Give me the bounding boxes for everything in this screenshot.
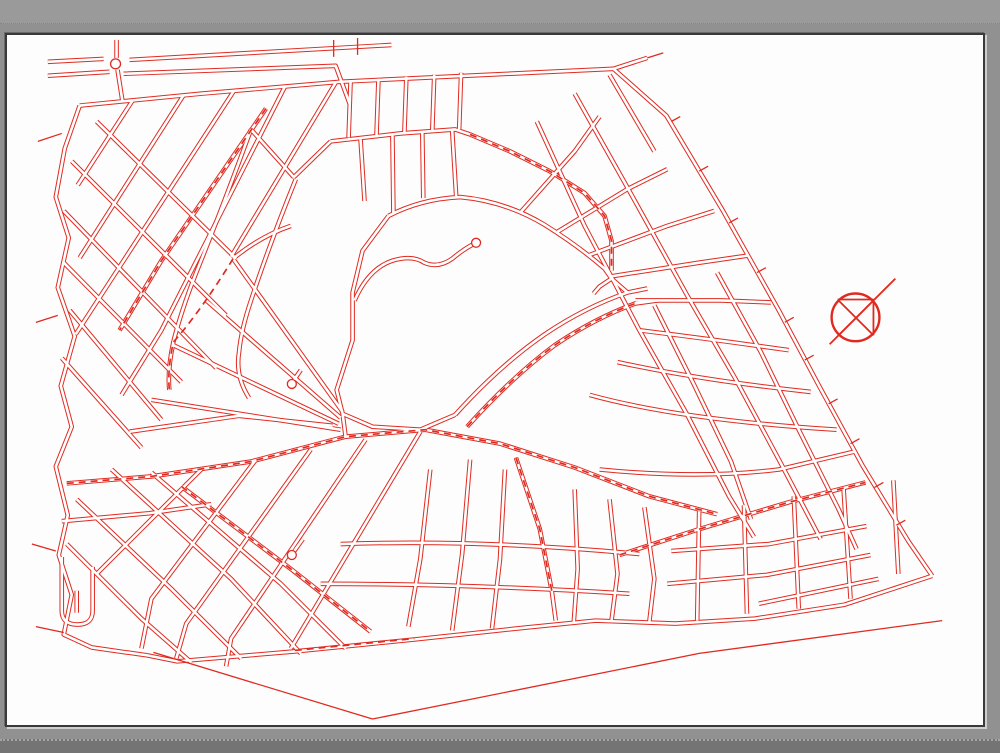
road-segment-casing: [337, 216, 389, 414]
road-segment-casing: [238, 179, 296, 398]
road-segment-core: [610, 256, 747, 277]
road-segment-core: [337, 216, 389, 414]
culdesac-bulb: [287, 380, 296, 389]
road-segment-core: [614, 58, 648, 69]
road-segment-core: [251, 129, 294, 177]
road-segment-core: [70, 310, 162, 419]
dashed-centerline: [467, 303, 635, 426]
road-segment-casing: [455, 289, 647, 415]
line-segment: [38, 133, 62, 141]
road-segment-core: [97, 469, 202, 573]
line-segment: [153, 652, 372, 719]
road-segment-core: [355, 244, 475, 301]
road-segment-core: [129, 45, 391, 60]
line-segment: [36, 315, 58, 322]
culdesac-bulb: [287, 551, 296, 560]
road-segment-core: [343, 414, 456, 430]
viewer-top-margin: [0, 0, 1000, 24]
road-casings: [48, 40, 932, 666]
road-segment-core: [97, 121, 236, 258]
app-window: { "viewer": { "description": "cad-map-pr…: [0, 0, 1000, 751]
line-segment: [32, 544, 56, 551]
road-segment-core: [392, 135, 393, 213]
road-segment-core: [639, 330, 788, 350]
road-segment-core: [455, 289, 647, 415]
drawing-sheet[interactable]: [5, 33, 985, 727]
road-segment-core: [594, 279, 612, 294]
road-segment-core: [291, 432, 420, 649]
road-segment-core: [78, 101, 133, 186]
road-segment-core: [62, 358, 142, 447]
road-segment-core: [238, 179, 296, 398]
line-segment: [647, 53, 663, 58]
map-drawing: [7, 35, 983, 725]
line-segment: [671, 117, 680, 122]
road-segment-core: [173, 345, 338, 424]
road-segment-core: [844, 488, 851, 598]
road-segment-casing: [516, 458, 556, 621]
line-segment: [851, 439, 860, 444]
dashed-centerline: [295, 639, 415, 651]
culdesac-bulb: [472, 238, 481, 247]
north-arrow-icon: [830, 279, 896, 345]
roundabout: [111, 59, 121, 69]
line-segment: [36, 627, 64, 633]
road-segment-core: [80, 96, 184, 258]
road-segment-core: [422, 132, 423, 198]
